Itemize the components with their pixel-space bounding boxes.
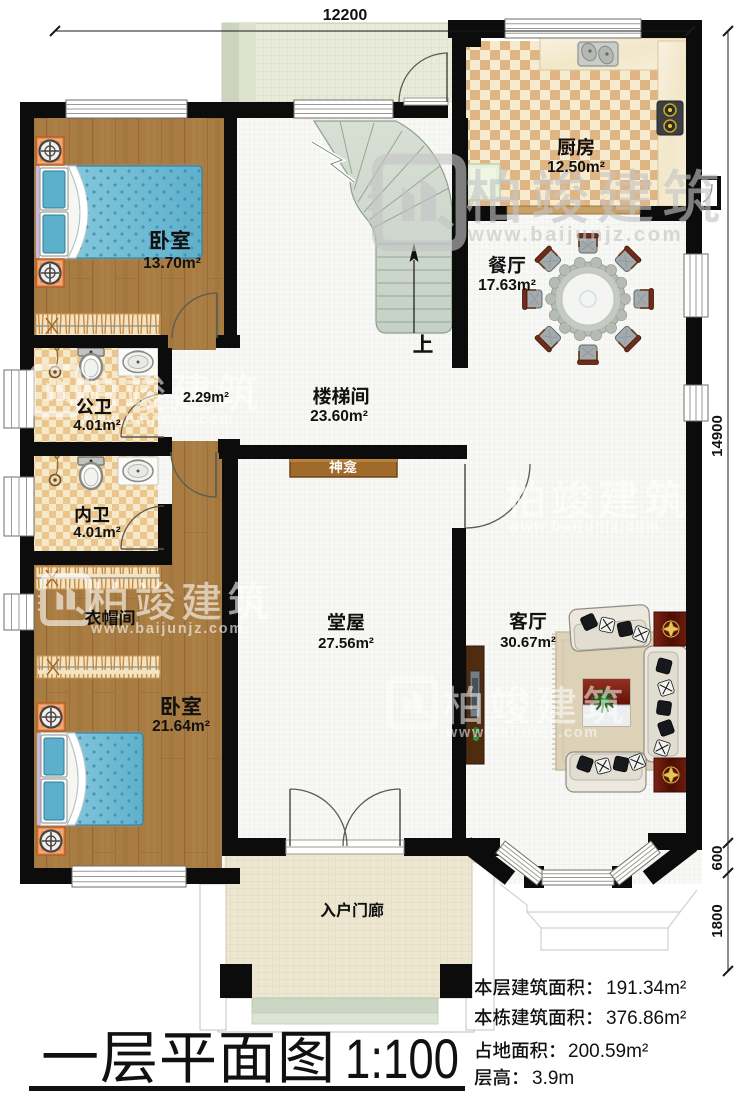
svg-text:1800: 1800 bbox=[709, 904, 726, 937]
svg-text:www.baijunjz.com: www.baijunjz.com bbox=[467, 224, 683, 246]
svg-text:27.56m²: 27.56m² bbox=[318, 635, 374, 652]
svg-text:4.01m²: 4.01m² bbox=[73, 524, 121, 541]
svg-text:www.baijunjz.com: www.baijunjz.com bbox=[507, 519, 661, 535]
svg-text:23.60m²: 23.60m² bbox=[310, 408, 368, 425]
svg-text:200.59m²: 200.59m² bbox=[568, 1041, 648, 1062]
svg-text:4.01m²: 4.01m² bbox=[73, 417, 121, 434]
svg-text:12.50m²: 12.50m² bbox=[547, 159, 605, 176]
svg-text:12200: 12200 bbox=[323, 7, 368, 24]
svg-text:3.9m: 3.9m bbox=[532, 1068, 574, 1089]
svg-text:www.baijunjz.com: www.baijunjz.com bbox=[445, 725, 599, 741]
svg-text:600: 600 bbox=[709, 845, 726, 870]
svg-text:191.34m²: 191.34m² bbox=[606, 978, 686, 999]
svg-text:2.29m²: 2.29m² bbox=[183, 390, 229, 406]
svg-text:www.baijunjz.com: www.baijunjz.com bbox=[90, 621, 244, 637]
svg-text:13.70m²: 13.70m² bbox=[143, 255, 201, 272]
svg-text:30.67m²: 30.67m² bbox=[500, 634, 556, 651]
svg-text:14900: 14900 bbox=[709, 415, 726, 457]
svg-text:1:100: 1:100 bbox=[345, 1027, 459, 1090]
svg-text:17.63m²: 17.63m² bbox=[478, 277, 536, 294]
svg-text:376.86m²: 376.86m² bbox=[606, 1008, 686, 1029]
svg-text:21.64m²: 21.64m² bbox=[152, 718, 210, 735]
